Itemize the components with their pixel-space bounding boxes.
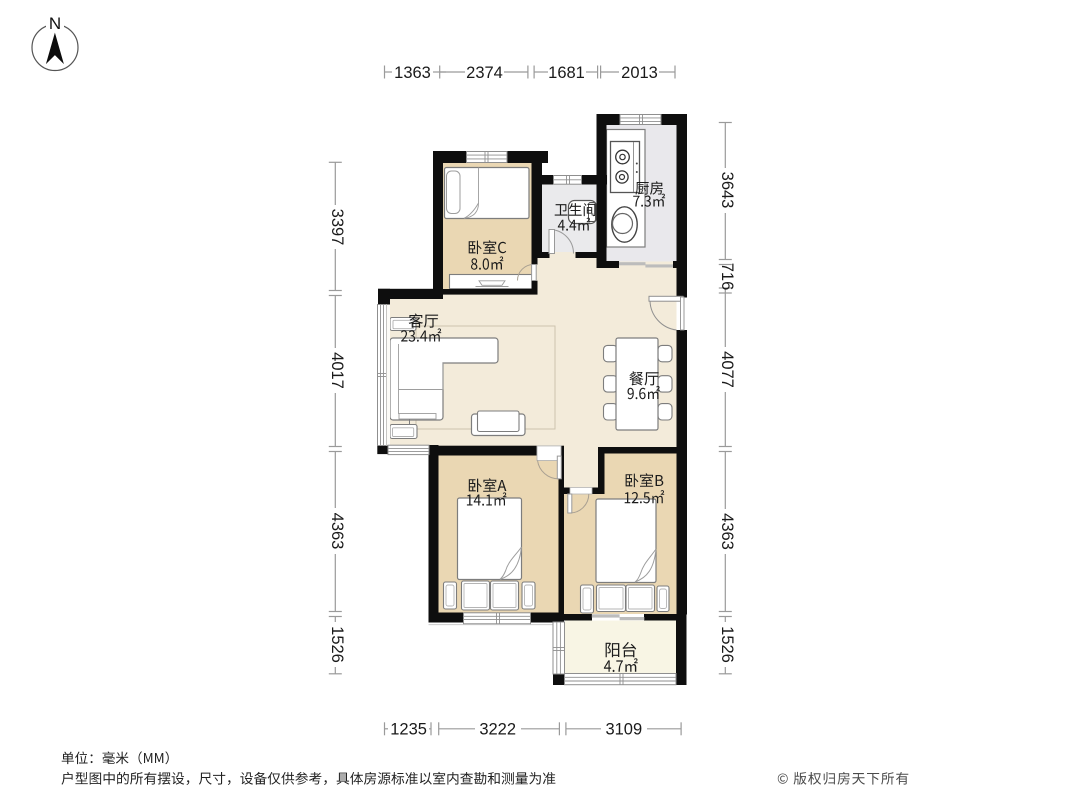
svg-text:1526: 1526	[718, 626, 736, 663]
svg-text:716: 716	[718, 263, 736, 291]
svg-text:4077: 4077	[718, 351, 736, 388]
svg-text:4363: 4363	[718, 513, 736, 550]
svg-text:1235: 1235	[390, 721, 427, 739]
svg-text:3397: 3397	[328, 209, 346, 246]
svg-text:3109: 3109	[605, 721, 642, 739]
svg-text:4017: 4017	[328, 352, 346, 389]
svg-text:2013: 2013	[621, 64, 658, 82]
svg-text:2374: 2374	[466, 64, 503, 82]
svg-text:4363: 4363	[328, 513, 346, 550]
svg-text:3643: 3643	[718, 172, 736, 209]
svg-text:1363: 1363	[394, 64, 431, 82]
svg-text:N: N	[49, 14, 61, 33]
svg-text:3222: 3222	[479, 721, 516, 739]
svg-text:1526: 1526	[328, 626, 346, 663]
svg-text:1681: 1681	[548, 64, 585, 82]
